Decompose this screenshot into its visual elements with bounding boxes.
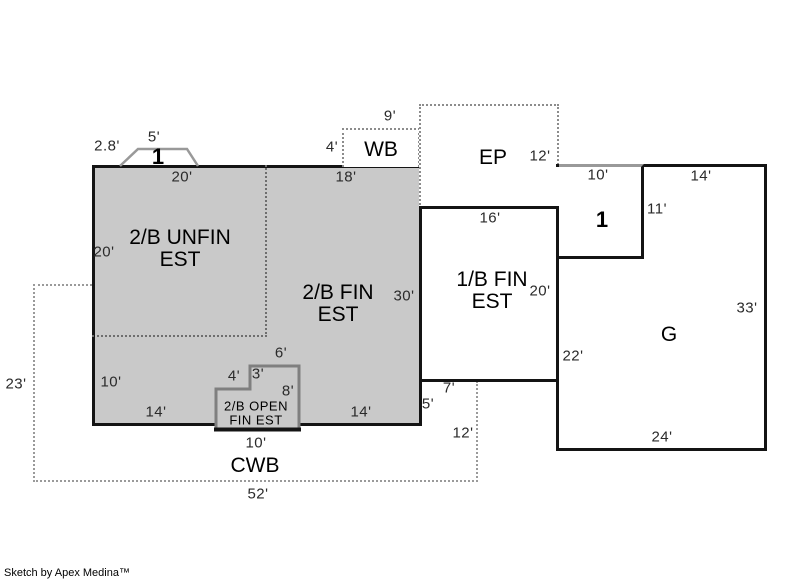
dim-open-top: 6' <box>275 345 287 362</box>
dim-one-right: 11' <box>647 201 667 218</box>
dim-cwb-bottom: 52' <box>247 486 268 503</box>
room-wb: WB <box>364 139 398 161</box>
dim-g-bottom: 24' <box>651 429 672 446</box>
dim-1b-top: 16' <box>479 210 500 227</box>
dim-1b-right: 20' <box>529 283 550 300</box>
dim-open-bottom: 10' <box>245 435 266 452</box>
dim-bottom-left: 14' <box>145 404 166 421</box>
dim-bottom-right: 14' <box>350 404 371 421</box>
dim-left-lower: 10' <box>100 374 121 391</box>
dim-unfin-left: 20' <box>93 244 114 261</box>
room-2b-open: 2/B OPEN FIN EST <box>224 400 288 429</box>
dim-wb-left: 4' <box>326 139 338 156</box>
room-2b-fin: 2/B FIN EST <box>302 282 373 326</box>
dim-porch-left: 5' <box>422 396 434 413</box>
dim-top-left: 20' <box>171 169 192 186</box>
dim-g-top: 14' <box>690 168 711 185</box>
dim-wb-top: 9' <box>384 108 396 125</box>
sketch-credit: Sketch by Apex Medina™ <box>4 567 130 579</box>
dim-fin-right: 30' <box>393 288 414 305</box>
labels-layer: 2.8'5'120'18'9'4'WBEP12'16'10'14'11'12/B… <box>0 0 800 587</box>
dim-ep-right: 12' <box>529 148 550 165</box>
floor-plan-sketch: 2.8'5'120'18'9'4'WBEP12'16'10'14'11'12/B… <box>0 0 800 587</box>
dim-g-right: 33' <box>736 300 757 317</box>
dim-bay-width: 2.8' <box>94 138 120 155</box>
dim-open-right: 8' <box>282 383 294 400</box>
dim-top-right: 18' <box>335 169 356 186</box>
marker-one-1: 1 <box>596 207 608 233</box>
dim-bay-top: 5' <box>148 129 160 146</box>
dim-one-top: 10' <box>587 167 608 184</box>
room-g: G <box>661 324 677 346</box>
marker-bay-1: 1 <box>152 144 164 170</box>
dim-porch-top: 7' <box>443 380 455 397</box>
room-ep: EP <box>479 147 507 169</box>
dim-cwb-right: 12' <box>452 425 473 442</box>
dim-cwb-left: 23' <box>5 376 26 393</box>
dim-open-step: 3' <box>252 366 264 383</box>
room-cwb: CWB <box>231 455 280 477</box>
dim-open-left: 4' <box>228 368 240 385</box>
dim-g-left: 22' <box>562 348 583 365</box>
room-1b-fin: 1/B FIN EST <box>456 269 527 313</box>
room-2b-unfin: 2/B UNFIN EST <box>129 227 231 271</box>
